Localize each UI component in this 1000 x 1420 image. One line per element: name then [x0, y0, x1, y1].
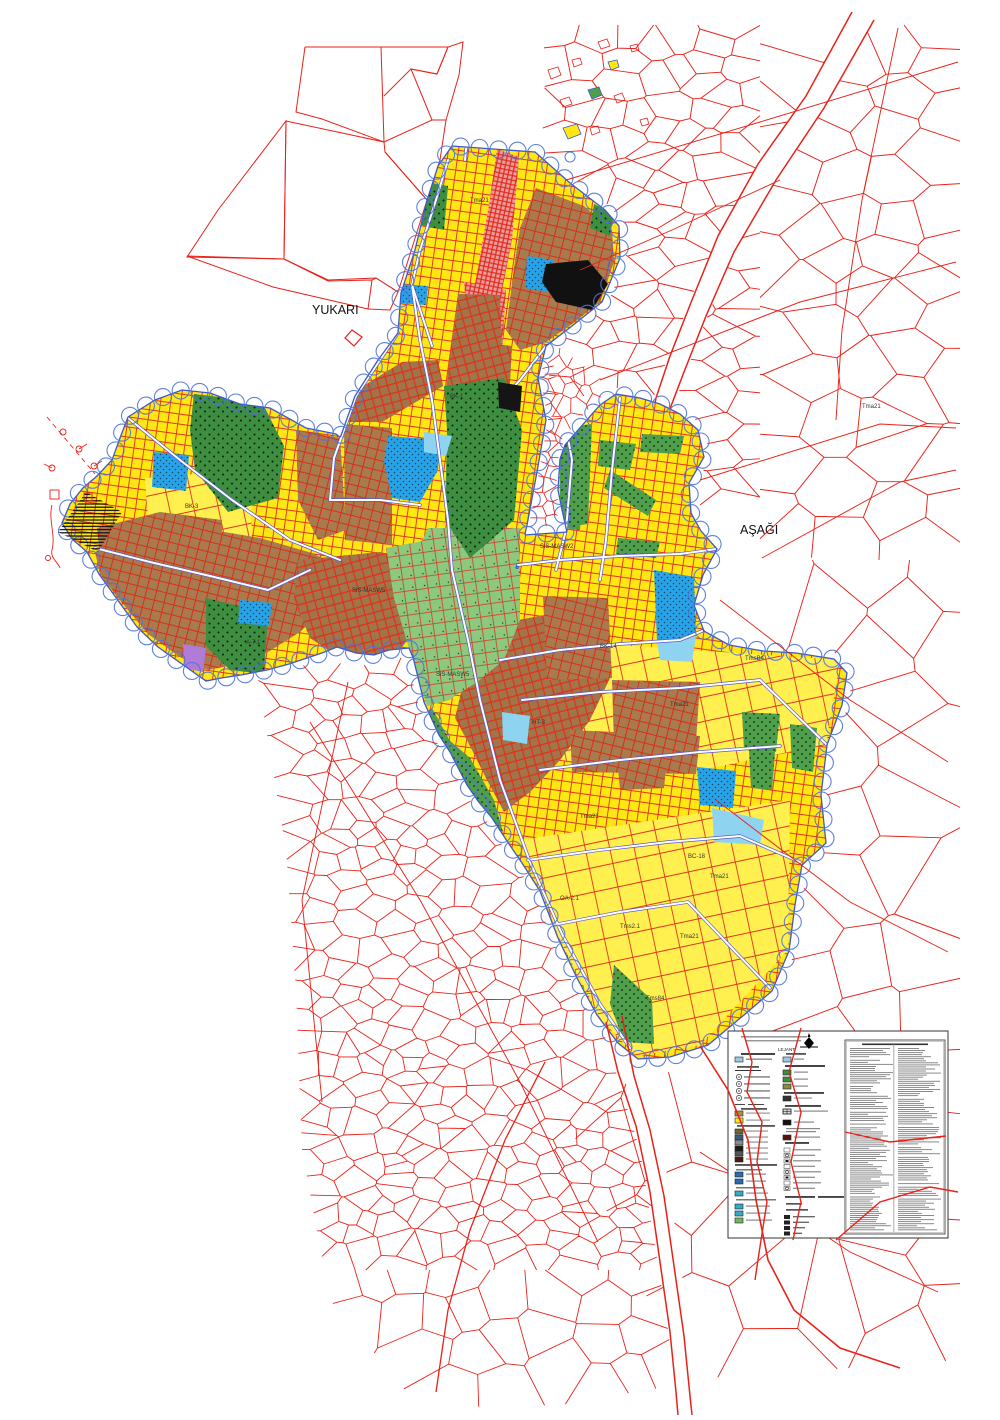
svg-text:Tma21: Tma21	[710, 874, 729, 880]
svg-text:TmsB4: TmsB4	[745, 656, 765, 662]
svg-text:YUKARI: YUKARI	[312, 303, 359, 317]
svg-text:BC-18: BC-18	[688, 854, 706, 860]
svg-text:BK-1: BK-1	[450, 394, 464, 400]
svg-text:Tms2.1: Tms2.1	[620, 924, 641, 930]
svg-text:OA-2.1: OA-2.1	[560, 896, 580, 902]
svg-text:Tma21: Tma21	[670, 702, 689, 708]
svg-text:LEJANT: LEJANT	[778, 1047, 795, 1052]
svg-text:A-7.1: A-7.1	[246, 640, 261, 646]
svg-text:Tms84: Tms84	[646, 996, 665, 1002]
svg-text:BK-14: BK-14	[600, 644, 617, 650]
svg-text:Tma21: Tma21	[470, 198, 489, 204]
svg-text:Tma21: Tma21	[680, 934, 699, 940]
svg-text:Tma21: Tma21	[862, 404, 881, 410]
svg-text:BK-3: BK-3	[185, 504, 199, 510]
svg-text:AŞAĞI: AŞAĞI	[740, 522, 778, 537]
svg-text:SiS-MASW2: SiS-MASW2	[540, 544, 574, 550]
svg-text:SiS-MASW5: SiS-MASW5	[352, 588, 386, 594]
svg-text:HT-3: HT-3	[532, 720, 546, 726]
svg-text:SiS-MASW5: SiS-MASW5	[436, 672, 470, 678]
svg-text:Tma21: Tma21	[580, 814, 599, 820]
